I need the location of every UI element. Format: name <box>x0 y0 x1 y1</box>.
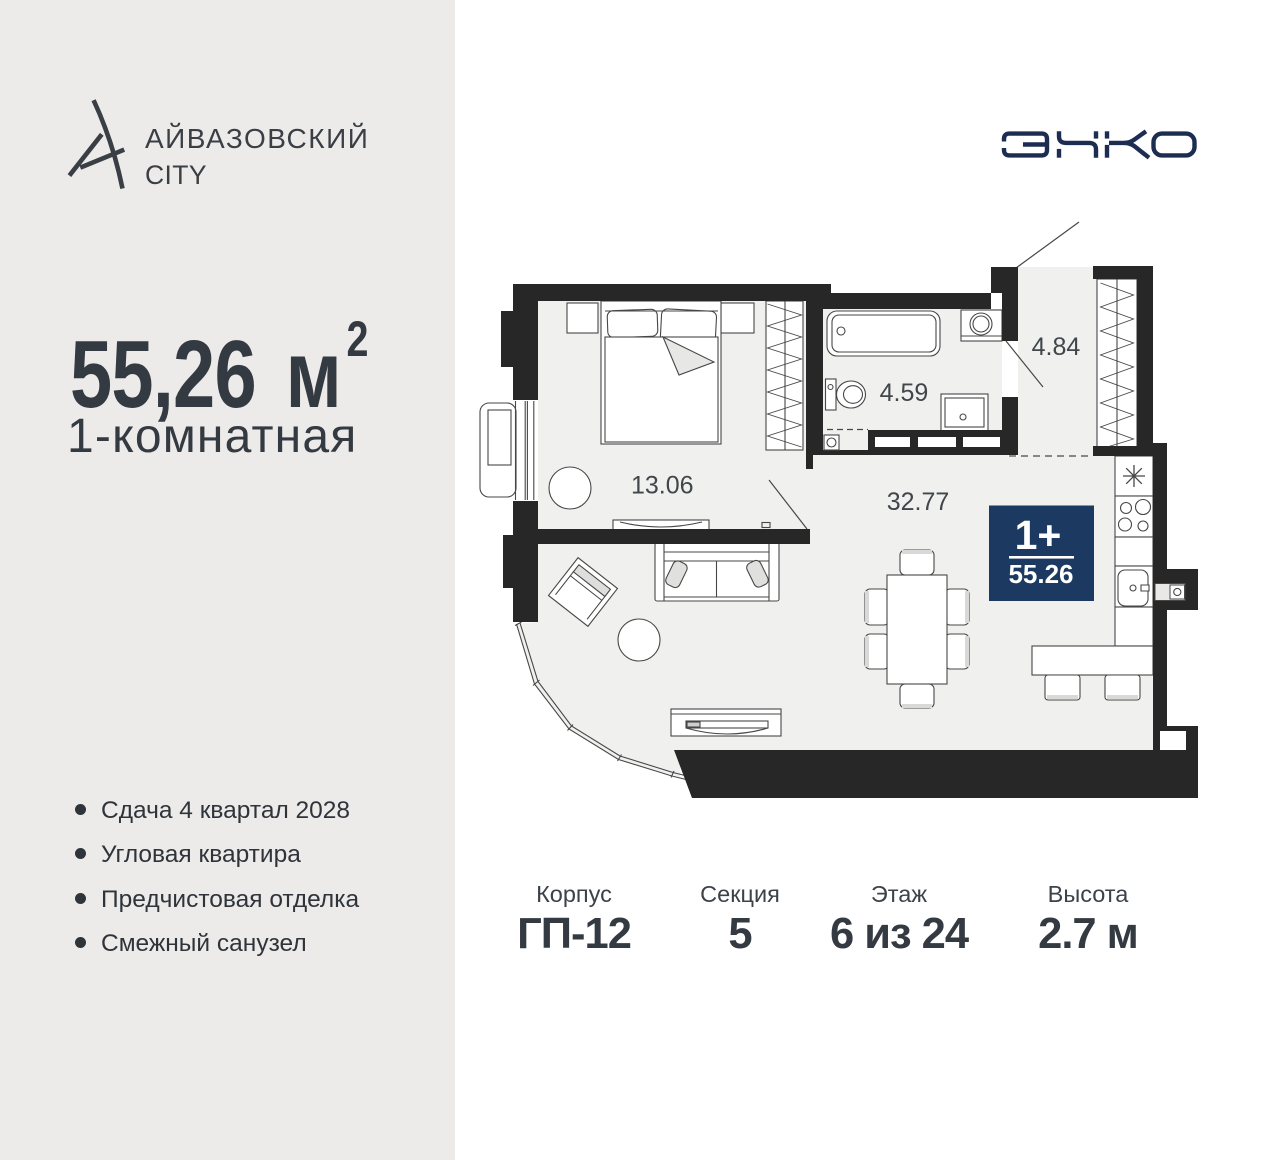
svg-text:1+: 1+ <box>1015 512 1062 558</box>
svg-text:55.26: 55.26 <box>1008 559 1073 589</box>
svg-text:13.06: 13.06 <box>631 472 694 500</box>
svg-text:4.84: 4.84 <box>1032 333 1081 361</box>
svg-text:4.59: 4.59 <box>880 379 929 407</box>
svg-text:32.77: 32.77 <box>887 488 950 516</box>
